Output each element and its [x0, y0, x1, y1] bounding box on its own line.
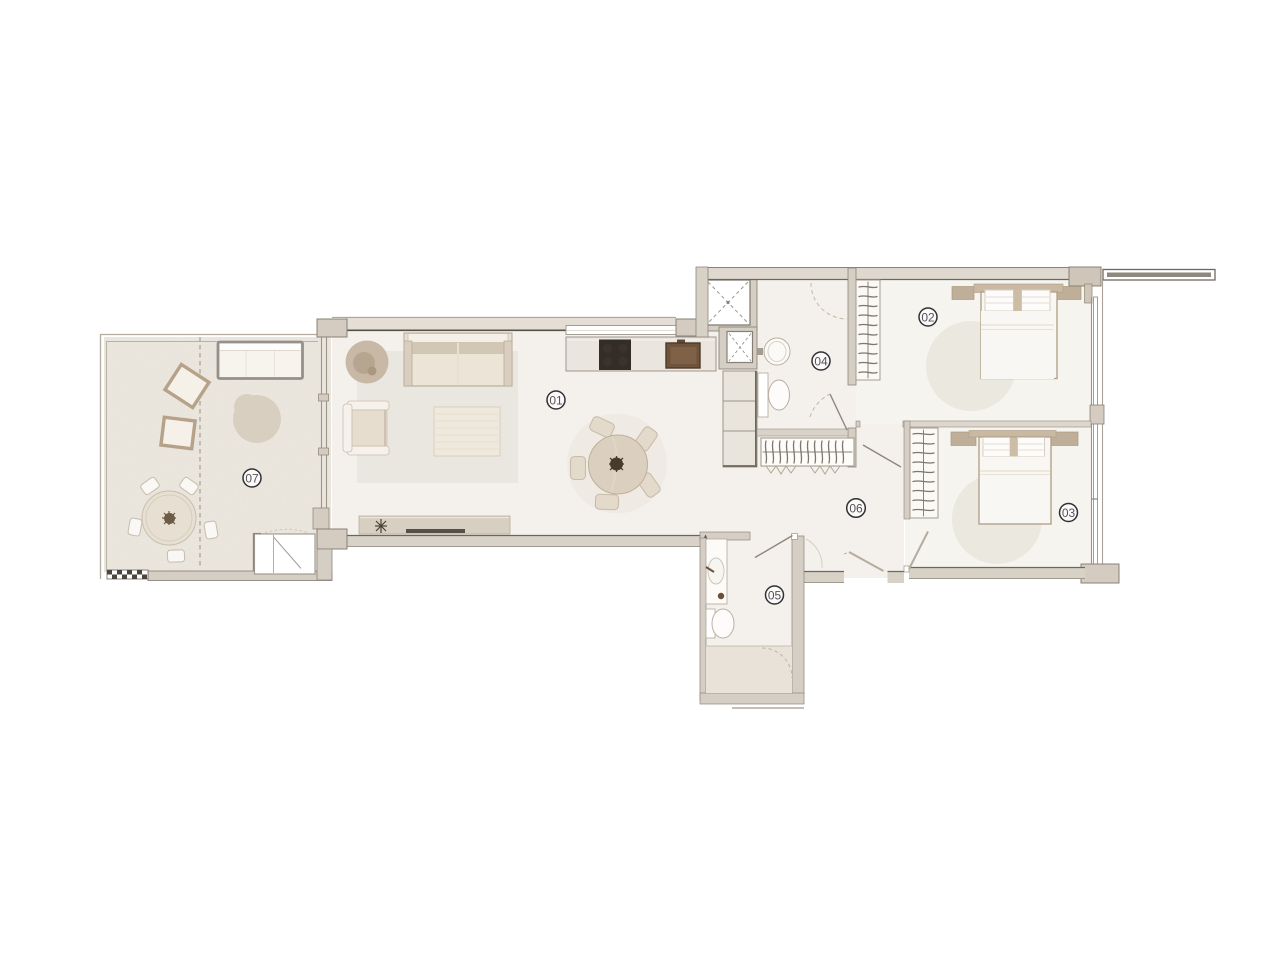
svg-text:07: 07: [245, 471, 259, 485]
svg-text:01: 01: [549, 393, 563, 407]
svg-text:05: 05: [768, 588, 782, 602]
svg-text:02: 02: [921, 310, 935, 324]
svg-text:04: 04: [814, 354, 828, 368]
svg-text:06: 06: [849, 501, 863, 515]
svg-text:03: 03: [1062, 506, 1076, 520]
